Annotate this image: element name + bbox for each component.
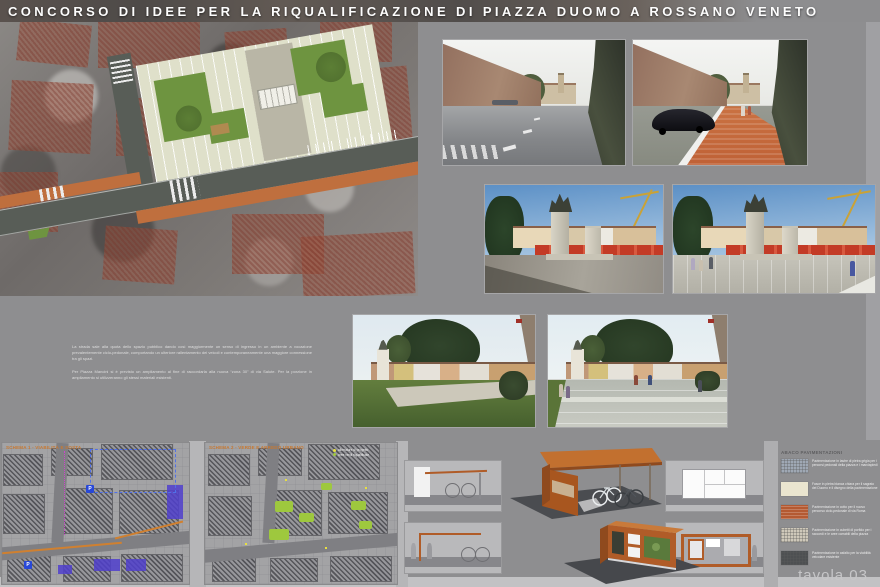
map-building: [271, 559, 317, 581]
material-label: Pavimentazione in cotto per il nuovo per…: [812, 505, 878, 519]
building-overlay: [16, 22, 92, 68]
kiosk-side: [542, 464, 550, 506]
pedestrian: [699, 260, 703, 271]
legend-dot: [333, 453, 336, 456]
bicycle-wheel: [461, 483, 476, 498]
map-building: [60, 489, 112, 533]
person-silhouette: [752, 545, 757, 561]
pedestrian: [850, 261, 855, 276]
plan-divider: [704, 484, 745, 485]
photo-piazza-existing: [353, 315, 535, 427]
building-overlay: [8, 80, 94, 154]
title-bar: CONCORSO DI IDEE PER LA RIQUALIFICAZIONE…: [0, 0, 880, 22]
map-caption: SCHEMA 1 - VIABILITÀ E SOSTA: [6, 445, 81, 450]
kiosk-plan-drawing: [666, 461, 763, 511]
material-swatch: [781, 459, 808, 473]
map-legend-label: aree verdi riqualificate: [338, 453, 369, 457]
parking-marker: P: [24, 561, 32, 569]
map-legend-label: alberature di progetto: [338, 448, 368, 452]
bicycle-wheel: [461, 547, 476, 562]
poster-graphic: [652, 543, 660, 551]
map-legend: alberature di progetto aree verdi riqual…: [333, 448, 369, 457]
map-tree-dot: [285, 479, 287, 481]
map-parking-zone: [126, 559, 146, 571]
photo-monument-existing: [485, 185, 663, 293]
canopy-post: [419, 533, 421, 561]
aerial-photo: [0, 22, 418, 296]
map-building: [329, 493, 387, 533]
map-green-area: [269, 529, 289, 540]
material-label: Pavimentazione in lastre di pietra grigi…: [812, 459, 878, 473]
plan-crosswalk: [110, 59, 134, 84]
legend-item: Pavimentazione in asfalto per la viabili…: [781, 551, 878, 565]
legend-item: Pavimentazione in cotto per il nuovo per…: [781, 505, 878, 519]
monument-pillar: [585, 228, 601, 257]
material-swatch: [781, 528, 808, 542]
monument: [571, 349, 584, 380]
pedestrian: [748, 106, 751, 115]
map-green-area: [299, 513, 314, 522]
pedestrian: [566, 386, 570, 398]
material-label: Pavimentazione in cubetti di porfido per…: [812, 528, 878, 542]
map-green-area: [359, 521, 372, 529]
map-building: [331, 557, 391, 581]
pedestrian: [698, 380, 702, 392]
cyclist: [634, 375, 638, 385]
greenery-plan-map: alberature di progetto aree verdi riqual…: [205, 443, 397, 584]
photo-street-existing: [443, 40, 625, 165]
legend-title: ABACO PAVIMENTAZIONI: [781, 450, 878, 455]
bush: [499, 371, 528, 400]
divider-band: [189, 441, 206, 587]
photo-street-render: [633, 40, 807, 165]
legend-item: Fasce in pietra bianca chiara per il sag…: [781, 482, 878, 496]
map-legend-item: aree verdi riqualificate: [333, 453, 369, 458]
monument-steps: [740, 254, 813, 259]
shelter-elevation-side: [405, 461, 501, 511]
map-green-area: [321, 483, 332, 490]
monument: [377, 349, 390, 380]
plan-divider: [724, 470, 725, 484]
cyclist: [648, 375, 652, 385]
map-building: [209, 497, 251, 535]
car-wheel: [696, 126, 703, 133]
flag: [708, 319, 714, 323]
map-green-area: [351, 501, 366, 510]
bell-tower: [558, 75, 564, 93]
bell-tower: [743, 75, 749, 93]
frame-cell: [724, 539, 740, 556]
pedestrian: [709, 257, 713, 269]
monument-pillar: [782, 228, 798, 257]
car-wheel: [659, 128, 666, 135]
description-paragraph: Per Piazza Mancini si è previsto un ampl…: [72, 369, 312, 381]
map-building: [4, 495, 44, 533]
material-label: Pavimentazione in asfalto per la viabili…: [812, 551, 878, 565]
monument-pedestal: [746, 211, 764, 256]
bike-shelter-render: [500, 446, 665, 521]
map-parking-zone: [58, 565, 72, 574]
map-tree-dot: [245, 543, 247, 545]
pedestrian: [741, 105, 745, 116]
material-label: Fasce in pietra bianca chiara per il sag…: [812, 482, 878, 496]
monument-steps: [546, 254, 614, 259]
map-route-dotted: [64, 451, 65, 535]
map-tree-dot: [325, 547, 327, 549]
competition-board: CONCORSO DI IDEE PER LA RIQUALIFICAZIONE…: [0, 0, 880, 587]
map-green-area: [275, 501, 293, 512]
photo-piazza-render: [548, 315, 727, 427]
poster-frame: [628, 534, 640, 546]
flag: [516, 319, 522, 323]
page-title: CONCORSO DI IDEE PER LA RIQUALIFICAZIONE…: [0, 0, 880, 19]
parking-marker: P: [86, 485, 94, 493]
paving-band: [548, 397, 727, 403]
legend-item: Pavimentazione in lastre di pietra grigi…: [781, 459, 878, 473]
poster-frame: [628, 547, 640, 559]
sheet-number-label: tavola 03: [798, 567, 868, 584]
canopy-post: [479, 473, 481, 499]
shelter-elevation-front: [405, 523, 501, 573]
menu-board: [612, 531, 624, 555]
map-building: [4, 455, 42, 485]
canopy-profile: [419, 533, 481, 535]
traffic-plan-map: P P SCHEMA 1 - VIABILITÀ E SOSTA: [2, 443, 189, 584]
crosswalk: [443, 145, 501, 159]
bicycle-wheel: [445, 483, 460, 498]
legend-item: Pavimentazione in cubetti di porfido per…: [781, 528, 878, 542]
bicycle-wheel: [475, 547, 490, 562]
paving-legend: ABACO PAVIMENTAZIONI Pavimentazione in l…: [781, 450, 878, 574]
material-swatch: [781, 505, 808, 519]
material-swatch: [781, 482, 808, 496]
parked-cars: [492, 100, 517, 105]
map-tree-dot: [365, 487, 367, 489]
legend-dot: [333, 449, 336, 452]
info-wall-render: [556, 511, 706, 586]
wall-side: [600, 525, 608, 564]
map-zone-outline: [90, 449, 176, 493]
monument-pedestal: [551, 211, 569, 256]
material-swatch: [781, 551, 808, 565]
map-parking-zone: [94, 559, 120, 571]
project-description: La strada sale alla quota dello spazio p…: [72, 344, 312, 387]
map-caption: SCHEMA 2 - VERDE E ARREDO URBANO: [209, 445, 304, 450]
pedestrian: [559, 384, 563, 397]
divider-band: [764, 441, 778, 587]
frame-cell: [706, 539, 720, 547]
map-building: [209, 455, 249, 485]
description-paragraph: La strada sale alla quota dello spazio p…: [72, 344, 312, 363]
photo-monument-render: [673, 185, 875, 293]
person-silhouette: [411, 543, 416, 559]
canopy-profile: [425, 470, 487, 474]
pedestrian: [691, 258, 695, 270]
person-silhouette: [427, 543, 432, 559]
new-paving: [673, 255, 875, 293]
